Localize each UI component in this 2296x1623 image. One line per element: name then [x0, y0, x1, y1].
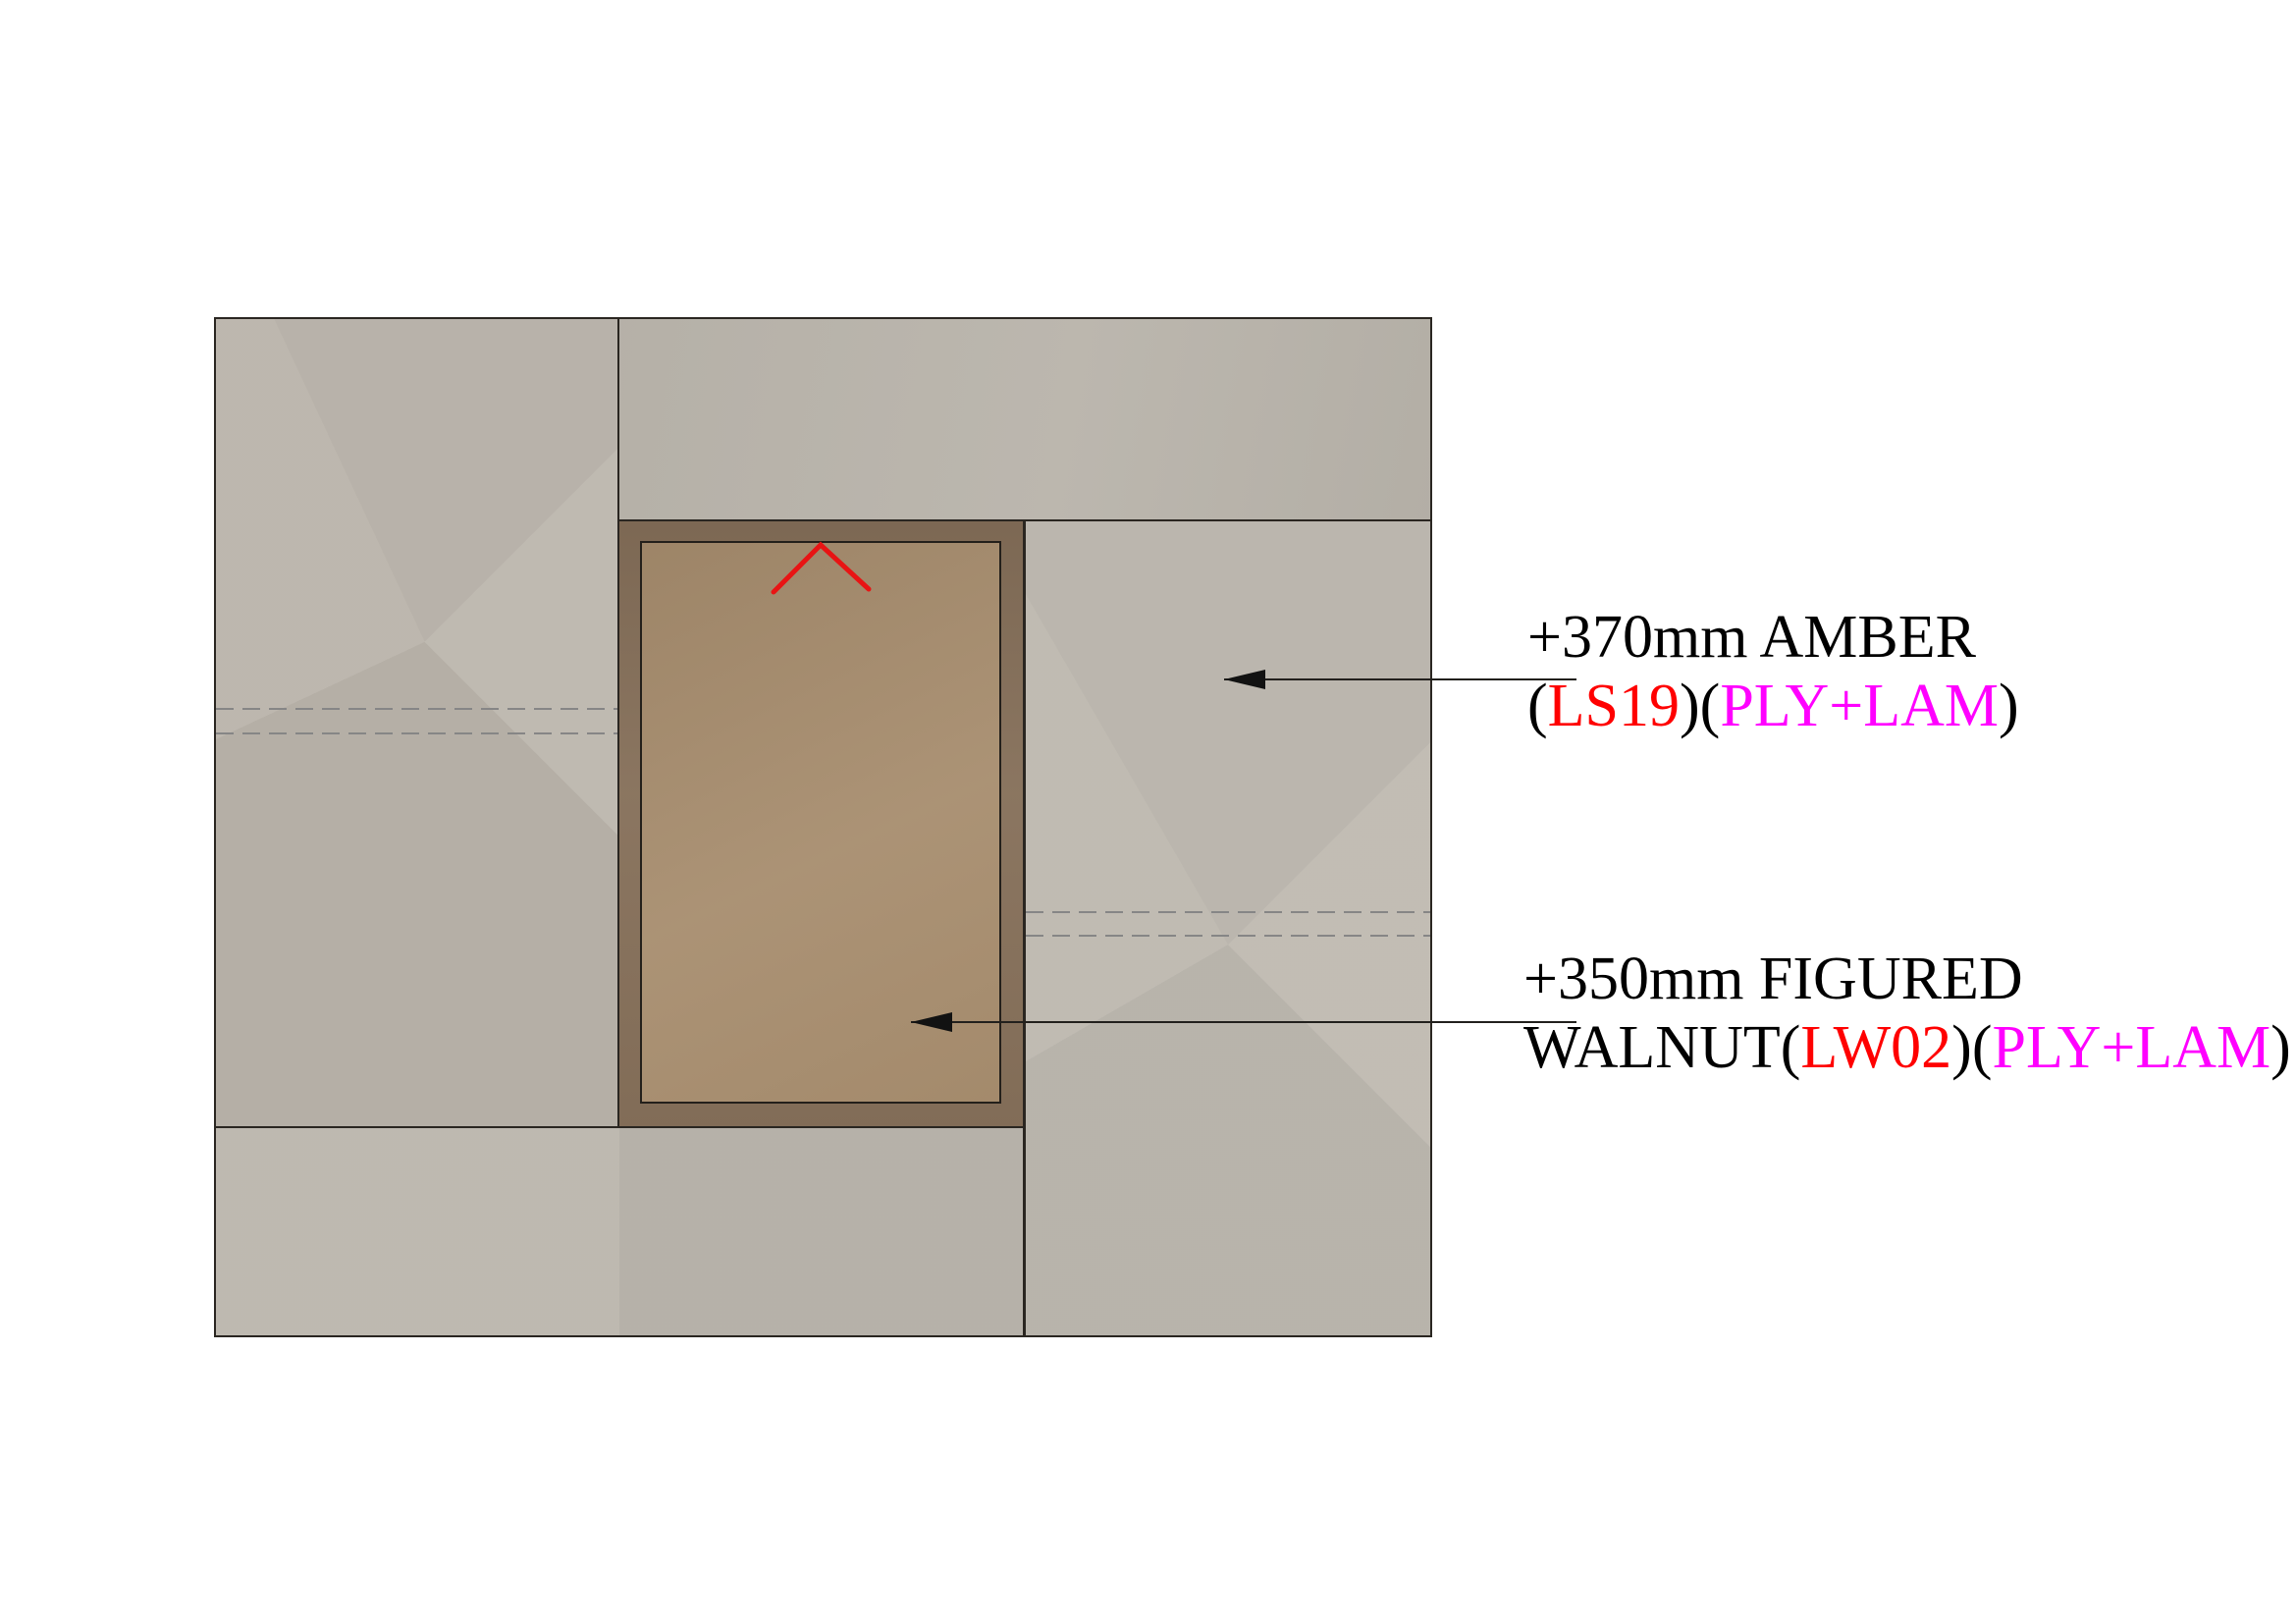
finish-code: LW02 — [1800, 1014, 1951, 1081]
annotation-walnut-line2: WALNUT(LW02)(PLY+LAM) — [1523, 1013, 2291, 1082]
dashed-joint-line — [1026, 911, 1430, 913]
laminate-panel-left — [214, 317, 619, 1128]
annotation-walnut: +350mm FIGURED WALNUT(LW02)(PLY+LAM) — [1523, 945, 2291, 1082]
paren: )( — [1680, 673, 1720, 739]
dashed-joint-line — [216, 732, 617, 734]
annotation-walnut-line1: +350mm FIGURED — [1523, 945, 2291, 1013]
laminate-panel-right — [1024, 519, 1432, 1337]
leader-line-walnut — [911, 1021, 1576, 1023]
paren: ) — [2270, 1014, 2291, 1081]
material-code: PLY+LAM — [1720, 673, 1999, 739]
finish-code: LS19 — [1548, 673, 1680, 739]
annotation-amber-line1: +370mm AMBER — [1527, 603, 2019, 672]
laminate-panel-bottom — [214, 1126, 1025, 1337]
leader-arrowhead-icon — [911, 1012, 952, 1032]
paren: ) — [1999, 673, 2019, 739]
laminate-panel-top — [617, 317, 1432, 521]
leader-line-amber — [1224, 678, 1576, 680]
annotation-amber-line2: (LS19)(PLY+LAM) — [1527, 672, 2019, 740]
paren: ( — [1527, 673, 1548, 739]
paren: WALNUT( — [1523, 1014, 1800, 1081]
grain-direction-chevron-icon — [764, 536, 878, 599]
annotation-amber: +370mm AMBER (LS19)(PLY+LAM) — [1527, 603, 2019, 740]
material-code: PLY+LAM — [1992, 1014, 2270, 1081]
leader-arrowhead-icon — [1224, 670, 1265, 689]
paren: )( — [1951, 1014, 1992, 1081]
dashed-joint-line — [1026, 935, 1430, 937]
elevation-drawing-canvas: +370mm AMBER (LS19)(PLY+LAM) +350mm FIGU… — [0, 0, 2296, 1623]
dashed-joint-line — [216, 708, 617, 710]
